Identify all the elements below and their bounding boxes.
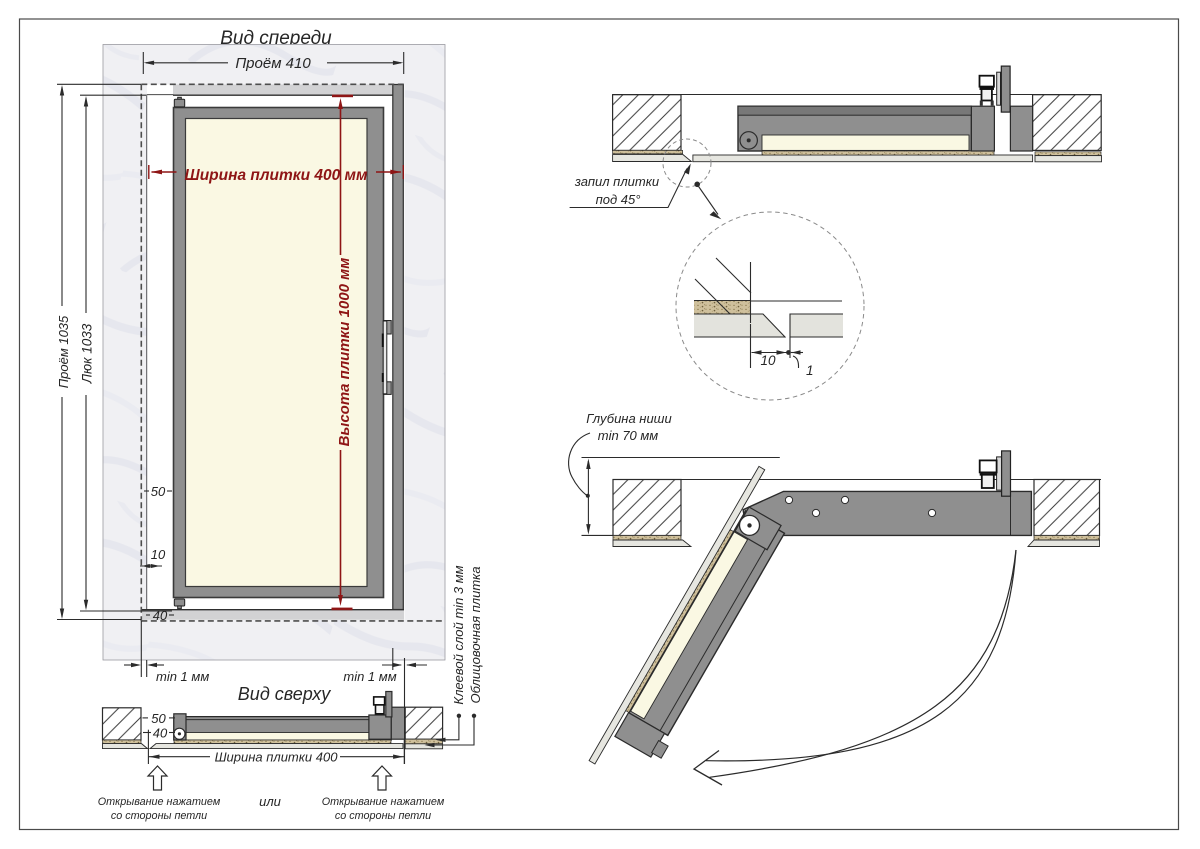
svg-text:1: 1 xyxy=(806,363,814,378)
svg-text:Клеевой слой min 3 мм: Клеевой слой min 3 мм xyxy=(451,565,466,704)
svg-text:Вид сверху: Вид сверху xyxy=(238,684,331,704)
svg-text:или: или xyxy=(259,794,281,809)
svg-text:Высота плитки 1000 мм: Высота плитки 1000 мм xyxy=(336,258,353,447)
svg-text:Ширина плитки 400 мм: Ширина плитки 400 мм xyxy=(185,167,368,184)
svg-text:Люк 1033: Люк 1033 xyxy=(80,323,95,384)
svg-text:50: 50 xyxy=(151,711,166,726)
svg-text:со стороны петли: со стороны петли xyxy=(111,810,207,822)
svg-text:запил плитки: запил плитки xyxy=(574,174,659,189)
svg-text:Ширина плитки 400: Ширина плитки 400 xyxy=(215,750,339,765)
svg-text:Открывание нажатием: Открывание нажатием xyxy=(98,796,221,808)
svg-text:Глубина ниши: Глубина ниши xyxy=(586,411,671,426)
svg-text:10: 10 xyxy=(151,547,166,562)
svg-text:под 45°: под 45° xyxy=(596,192,641,207)
svg-text:50: 50 xyxy=(151,484,166,499)
svg-text:min 70 мм: min 70 мм xyxy=(598,428,659,443)
svg-text:min 1 мм: min 1 мм xyxy=(343,669,396,684)
svg-text:Проём 410: Проём 410 xyxy=(235,55,311,72)
svg-text:Проём 1035: Проём 1035 xyxy=(56,315,71,388)
svg-text:40: 40 xyxy=(153,608,168,623)
svg-text:со стороны петли: со стороны петли xyxy=(335,810,431,822)
svg-text:Открывание нажатием: Открывание нажатием xyxy=(322,796,445,808)
svg-text:min 1 мм: min 1 мм xyxy=(156,669,209,684)
svg-text:10: 10 xyxy=(760,353,776,368)
svg-text:40: 40 xyxy=(153,726,168,741)
svg-text:Облицовочная плитка: Облицовочная плитка xyxy=(468,566,483,703)
